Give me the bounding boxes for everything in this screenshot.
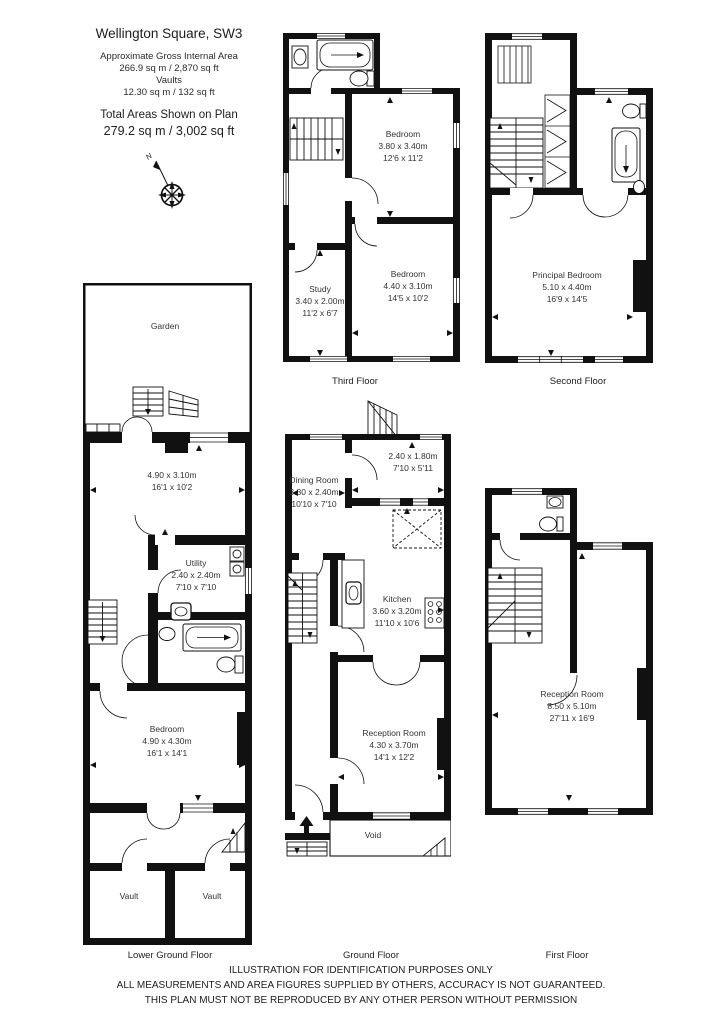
sink-icon xyxy=(159,628,175,641)
room-dims-ft: 11'2 x 6'7 xyxy=(295,308,344,320)
washer-dryer-icons xyxy=(230,547,244,576)
room-name: Vault xyxy=(120,891,139,903)
room-name: Bedroom xyxy=(378,129,427,141)
room-name: Garden xyxy=(151,321,179,333)
floor-label-third: Third Floor xyxy=(332,376,378,387)
room-label-void: Void xyxy=(365,830,382,842)
floor-label-first: First Floor xyxy=(546,950,589,961)
skylight xyxy=(393,510,441,548)
sink-icon xyxy=(547,496,563,508)
room-dims-ft: 12'6 x 11'2 xyxy=(378,153,427,165)
kitchen-counter xyxy=(342,560,364,628)
porch-lightwell xyxy=(86,424,120,432)
stairs xyxy=(288,573,317,643)
room-name: Study xyxy=(295,284,344,296)
bathtub-icon xyxy=(317,40,373,70)
wc-fixtures xyxy=(540,496,564,531)
roof-stair-icon xyxy=(498,46,531,83)
second-floor-plan xyxy=(485,33,653,368)
room-label-vault-right: Vault xyxy=(203,891,222,903)
compass-north-label: N xyxy=(144,151,154,162)
room-dims-ft: 10'10 x 7'10 xyxy=(289,499,338,511)
external-stair xyxy=(368,401,397,437)
stairs xyxy=(488,568,542,643)
wardrobe-icons xyxy=(545,95,570,188)
page-title: Wellington Square, SW3 xyxy=(58,26,280,41)
floor-label-lower-ground: Lower Ground Floor xyxy=(128,950,212,961)
bathroom-fixtures xyxy=(292,40,374,86)
vault-steps xyxy=(222,823,245,852)
room-label-garden: Garden xyxy=(151,321,179,333)
room-dims-m: 4.40 x 3.10m xyxy=(383,281,432,293)
room-label-lgf-bedroom: Bedroom 4.90 x 4.30m 16'1 x 14'1 xyxy=(142,724,191,760)
sink-icon xyxy=(634,181,645,194)
disclaimer-line-2: ALL MEASUREMENTS AND AREA FIGURES SUPPLI… xyxy=(117,980,606,991)
toilet-icon xyxy=(350,71,374,86)
room-label-utility: Utility 2.40 x 2.40m 7'10 x 7'10 xyxy=(171,558,220,594)
room-name: Bedroom xyxy=(383,269,432,281)
bathtub-icon xyxy=(612,128,640,182)
toilet-icon xyxy=(217,656,243,673)
garden-steps xyxy=(133,387,198,417)
room-dims-m: 3.80 x 3.40m xyxy=(378,141,427,153)
stove-icon xyxy=(425,598,444,628)
room-dims-ft: 16'1 x 10'2 xyxy=(147,482,196,494)
room-label-vault-left: Vault xyxy=(120,891,139,903)
room-name: Bedroom xyxy=(142,724,191,736)
front-steps xyxy=(287,842,327,856)
room-name: Utility xyxy=(171,558,220,570)
room-dims-m: 4.90 x 3.10m xyxy=(147,470,196,482)
void-outline xyxy=(330,820,451,856)
room-label-gf-reception: Reception Room 4.30 x 3.70m 14'1 x 12'2 xyxy=(362,728,425,764)
room-label-kitchen: Kitchen 3.60 x 3.20m 11'10 x 10'6 xyxy=(372,594,421,630)
room-dims-ft: 7'10 x 7'10 xyxy=(171,582,220,594)
stairs xyxy=(290,118,343,160)
room-label-ff-reception: Reception Room 8.50 x 5.10m 27'11 x 16'9 xyxy=(540,689,603,725)
room-dims-ft: 16'1 x 14'1 xyxy=(142,748,191,760)
title-block: Wellington Square, SW3 Approximate Gross… xyxy=(58,26,280,138)
disclaimer-line-1: ILLUSTRATION FOR IDENTIFICATION PURPOSES… xyxy=(229,965,493,976)
gia-value: 266.9 sq m / 2,870 sq ft xyxy=(58,63,280,75)
room-name: Principal Bedroom xyxy=(532,270,601,282)
room-name: Vault xyxy=(203,891,222,903)
vaults-value: 12.30 sq m / 132 sq ft xyxy=(58,87,280,99)
room-name: Dining Room xyxy=(289,475,338,487)
room-dims-ft: 7'10 x 5'11 xyxy=(388,463,437,475)
disclaimer-line-3: THIS PLAN MUST NOT BE REPRODUCED BY ANY … xyxy=(145,995,577,1006)
room-label-principal-bedroom: Principal Bedroom 5.10 x 4.40m 16'9 x 14… xyxy=(532,270,601,306)
bathroom-fixtures xyxy=(612,104,646,194)
toilet-icon xyxy=(623,104,647,118)
room-dims-ft: 16'9 x 14'5 xyxy=(532,294,601,306)
room-dims-m: 3.40 x 2.00m xyxy=(295,296,344,308)
room-dims-m: 2.40 x 2.40m xyxy=(171,570,220,582)
room-dims-ft: 14'1 x 12'2 xyxy=(362,752,425,764)
room-label-tf-bedroom-front: Bedroom 4.40 x 3.10m 14'5 x 10'2 xyxy=(383,269,432,305)
room-name: Void xyxy=(365,830,382,842)
total-label: Total Areas Shown on Plan xyxy=(58,109,280,121)
lower-ground-floor-plan xyxy=(83,283,252,945)
gia-label: Approximate Gross Internal Area xyxy=(58,51,280,63)
utility-sink-icon xyxy=(171,603,191,620)
total-value: 279.2 sq m / 3,002 sq ft xyxy=(58,124,280,138)
room-dims-ft: 27'11 x 16'9 xyxy=(540,713,603,725)
bathroom-fixtures xyxy=(159,624,243,673)
room-dims-ft: 11'10 x 10'6 xyxy=(372,618,421,630)
room-label-dining: Dining Room 3.30 x 2.40m 10'10 x 7'10 xyxy=(289,475,338,511)
floor-label-ground: Ground Floor xyxy=(343,950,399,961)
room-label-lgf-room: 4.90 x 3.10m 16'1 x 10'2 xyxy=(147,470,196,494)
room-name: Reception Room xyxy=(540,689,603,701)
door-openings xyxy=(295,68,378,272)
room-dims-m: 3.30 x 2.40m xyxy=(289,487,338,499)
garden-walls xyxy=(83,283,252,443)
stairs xyxy=(490,118,543,188)
room-name: Kitchen xyxy=(372,594,421,606)
room-dims-m: 4.30 x 3.70m xyxy=(362,740,425,752)
bathtub-icon xyxy=(183,624,241,651)
sink-icon xyxy=(346,582,361,604)
room-dims-m: 3.60 x 3.20m xyxy=(372,606,421,618)
stairs xyxy=(88,600,117,644)
room-name: Reception Room xyxy=(362,728,425,740)
room-dims-m: 2.40 x 1.80m xyxy=(388,451,437,463)
room-dims-m: 4.90 x 4.30m xyxy=(142,736,191,748)
room-dims-m: 8.50 x 5.10m xyxy=(540,701,603,713)
room-label-study: Study 3.40 x 2.00m 11'2 x 6'7 xyxy=(295,284,344,320)
room-dims-m: 5.10 x 4.40m xyxy=(532,282,601,294)
first-floor-plan xyxy=(485,483,653,815)
toilet-icon xyxy=(540,517,564,531)
floor-label-second: Second Floor xyxy=(550,376,607,387)
vaults-label: Vaults xyxy=(58,75,280,87)
room-label-gf-rear: 2.40 x 1.80m 7'10 x 5'11 xyxy=(388,451,437,475)
room-label-tf-bedroom-rear: Bedroom 3.80 x 3.40m 12'6 x 11'2 xyxy=(378,129,427,165)
room-dims-ft: 14'5 x 10'2 xyxy=(383,293,432,305)
compass-icon: N xyxy=(141,150,195,212)
